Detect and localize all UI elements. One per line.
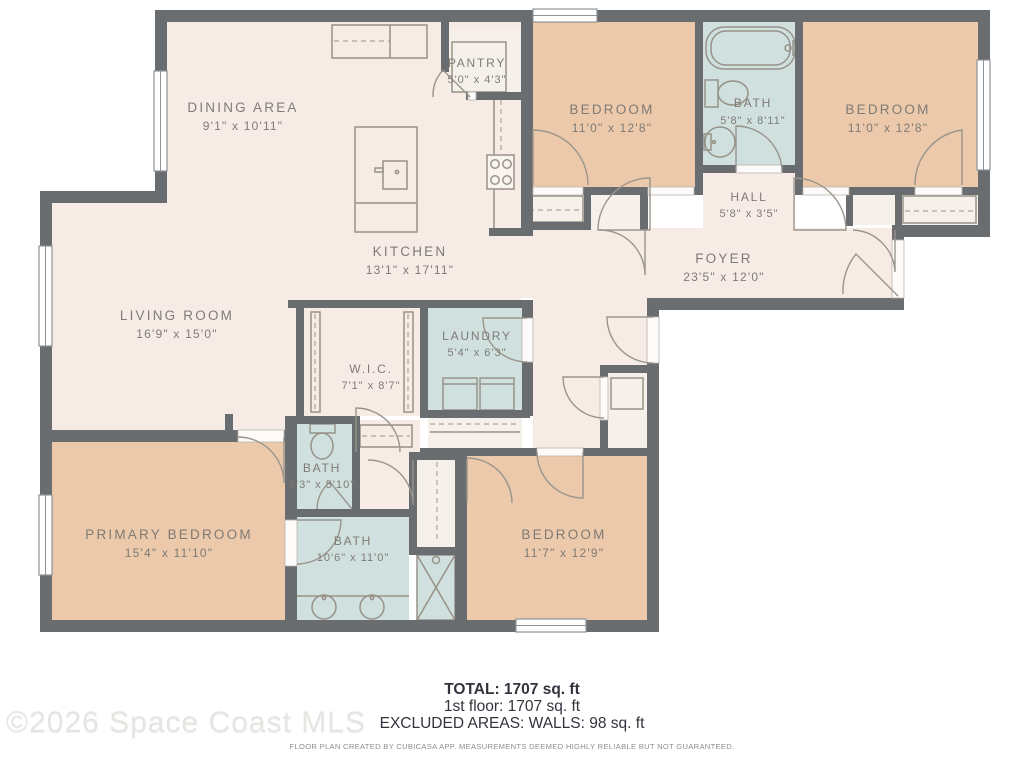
room-dims-living-room: 16'9" x 15'0" (136, 327, 217, 341)
room-dims-foyer: 23'5" x 12'0" (683, 270, 764, 284)
room-dims-bedroom-bottom: 11'7" x 12'9" (524, 546, 605, 560)
room-dims-bedroom-top-right: 11'0" x 12'8" (848, 121, 929, 135)
room-label-bedroom-bottom: BEDROOM (521, 527, 606, 542)
room-label-pantry: PANTRY (448, 56, 506, 70)
bath-primary-floor (297, 517, 409, 620)
room-label-bath-top: BATH (734, 96, 772, 110)
room-label-primary-bedroom: PRIMARY BEDROOM (85, 527, 253, 542)
linen-closet-floor (417, 458, 455, 547)
floor-plan: DINING AREA 9'1" x 10'11" PANTRY 5'0" x … (0, 0, 1024, 768)
room-label-kitchen: KITCHEN (373, 244, 448, 259)
room-dims-bath-top: 5'8" x 8'11" (720, 115, 785, 127)
room-dims-kitchen: 13'1" x 17'11" (366, 263, 454, 277)
room-label-bath-powder: BATH (303, 461, 341, 475)
room-dims-hall: 5'8" x 3'5" (719, 208, 778, 220)
bath-top-floor (703, 22, 795, 165)
stove-icon (487, 155, 514, 189)
disclaimer-text: FLOOR PLAN CREATED BY CUBICASA APP. MEAS… (0, 742, 1024, 751)
room-dims-primary-bedroom: 15'4" x 11'10" (125, 546, 213, 560)
watermark: ©2026 Space Coast MLS (6, 706, 366, 740)
room-dims-laundry: 5'4" x 6'3" (447, 347, 506, 359)
room-label-living-room: LIVING ROOM (120, 308, 234, 323)
room-label-hall: HALL (730, 190, 767, 204)
room-label-foyer: FOYER (695, 251, 753, 266)
room-label-dining-area: DINING AREA (187, 100, 298, 115)
room-dims-wic: 7'1" x 8'7" (341, 380, 400, 392)
room-label-bedroom-top-right: BEDROOM (845, 102, 930, 117)
floor-plan-page: DINING AREA 9'1" x 10'11" PANTRY 5'0" x … (0, 0, 1024, 768)
room-dims-bath-primary: 10'6" x 11'0" (317, 552, 390, 564)
room-label-bath-primary: BATH (334, 534, 372, 548)
total-area: TOTAL: 1707 sq. ft (0, 681, 1024, 698)
room-label-laundry: LAUNDRY (442, 329, 512, 343)
laundry-floor (428, 308, 522, 410)
room-dims-dining-area: 9'1" x 10'11" (203, 119, 284, 133)
room-label-wic: W.I.C. (349, 362, 392, 376)
room-dims-bath-powder: 3'3" x 5'10" (289, 479, 355, 491)
room-dims-bedroom-top-left: 11'0" x 12'8" (572, 121, 653, 135)
room-label-bedroom-top-left: BEDROOM (569, 102, 654, 117)
room-dims-pantry: 5'0" x 4'3" (447, 74, 506, 86)
